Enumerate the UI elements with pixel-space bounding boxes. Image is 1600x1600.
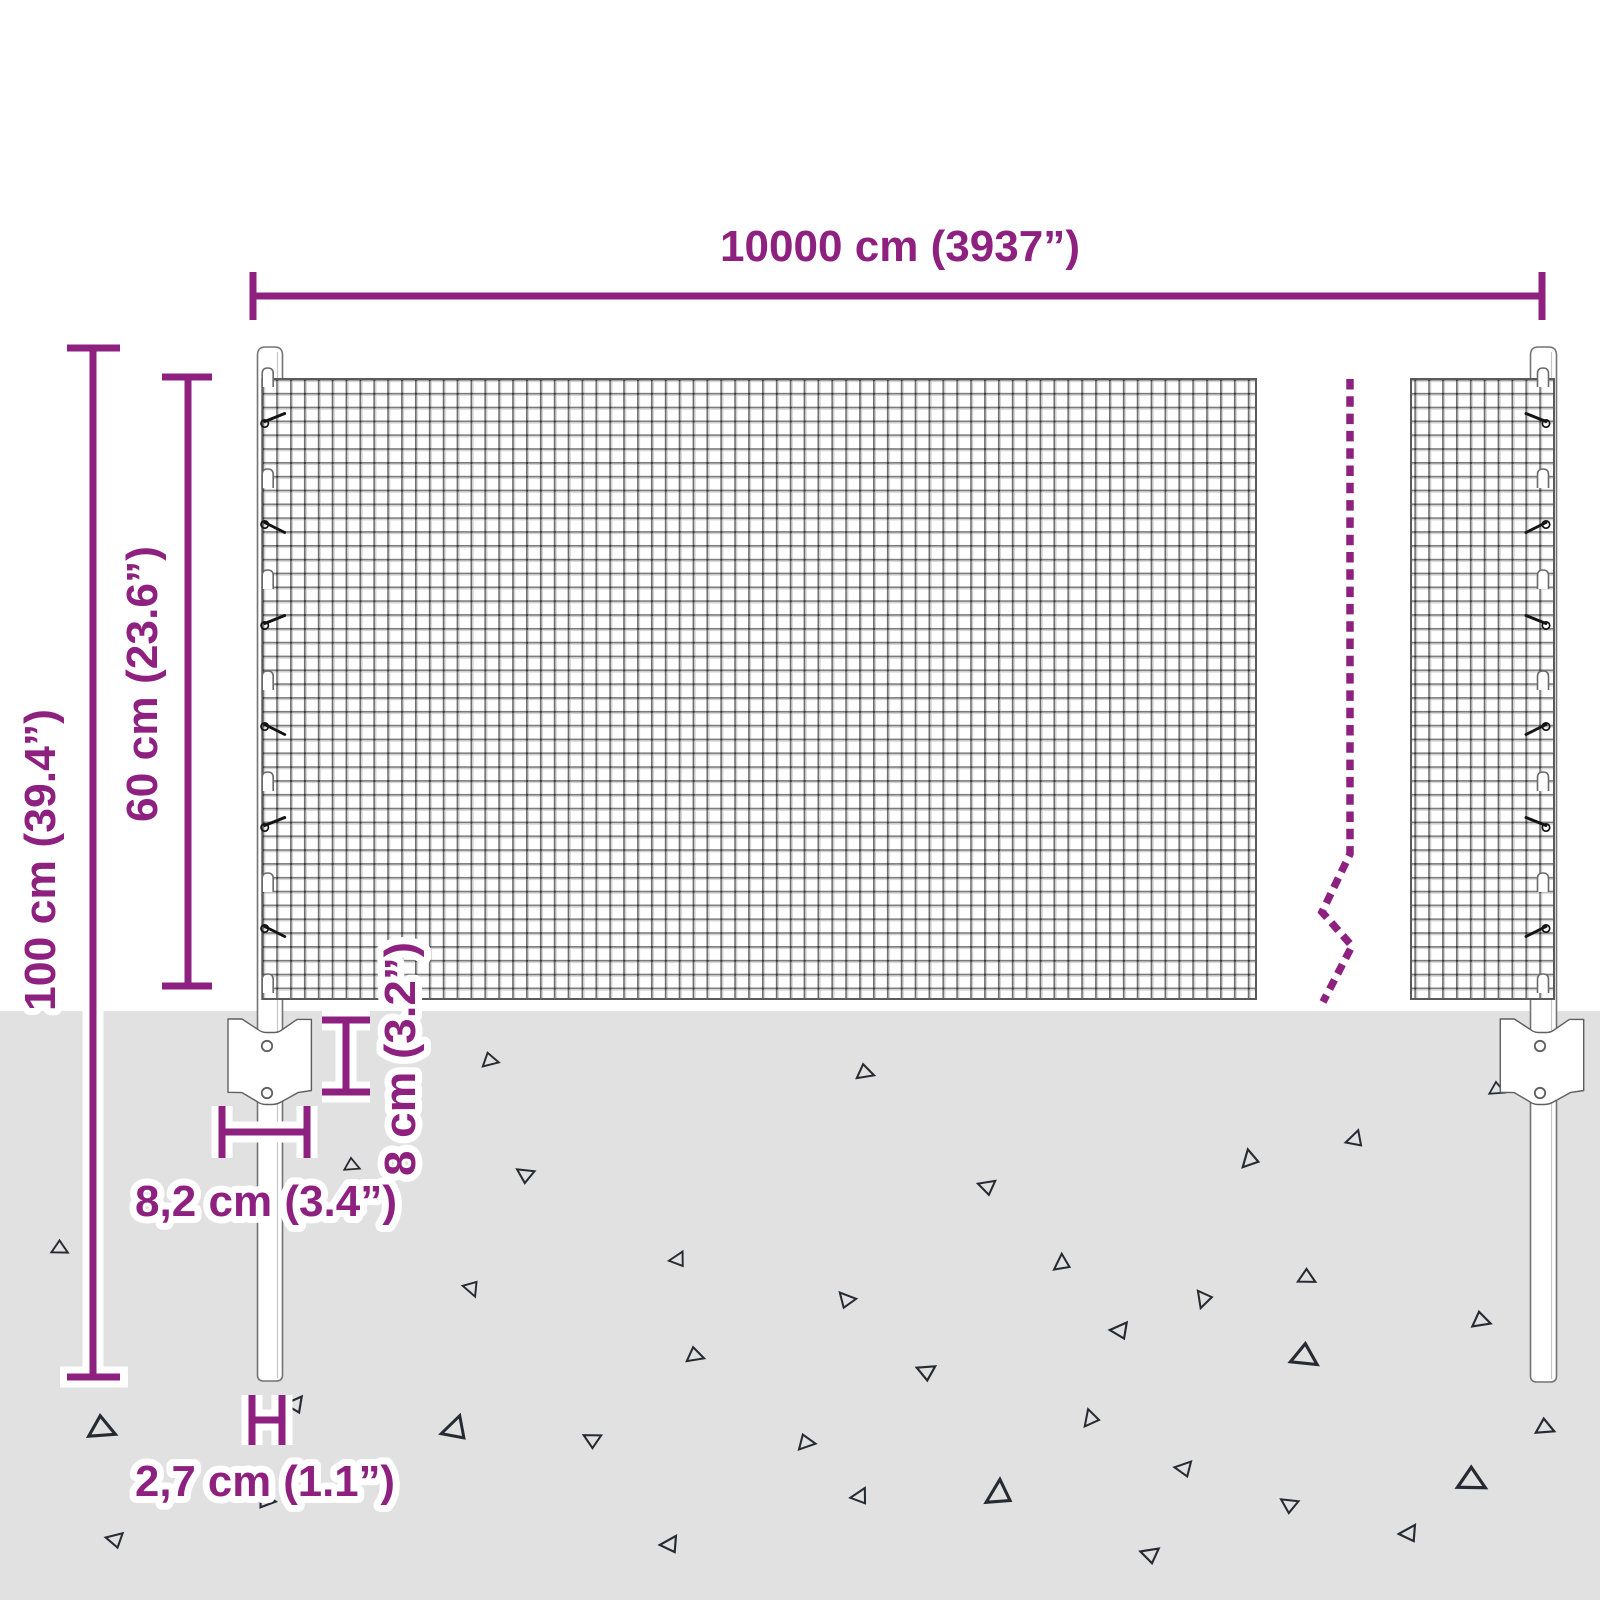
svg-text:100 cm (39.4”): 100 cm (39.4”) [16, 709, 65, 1011]
svg-text:8,2 cm (3.4”): 8,2 cm (3.4”) [135, 1177, 397, 1226]
svg-text:2,7 cm (1.1”): 2,7 cm (1.1”) [135, 1457, 395, 1506]
svg-text:8 cm (3.2”): 8 cm (3.2”) [376, 942, 425, 1176]
svg-text:60 cm (23.6”): 60 cm (23.6”) [118, 546, 167, 822]
svg-text:10000 cm (3937”): 10000 cm (3937”) [720, 222, 1080, 271]
